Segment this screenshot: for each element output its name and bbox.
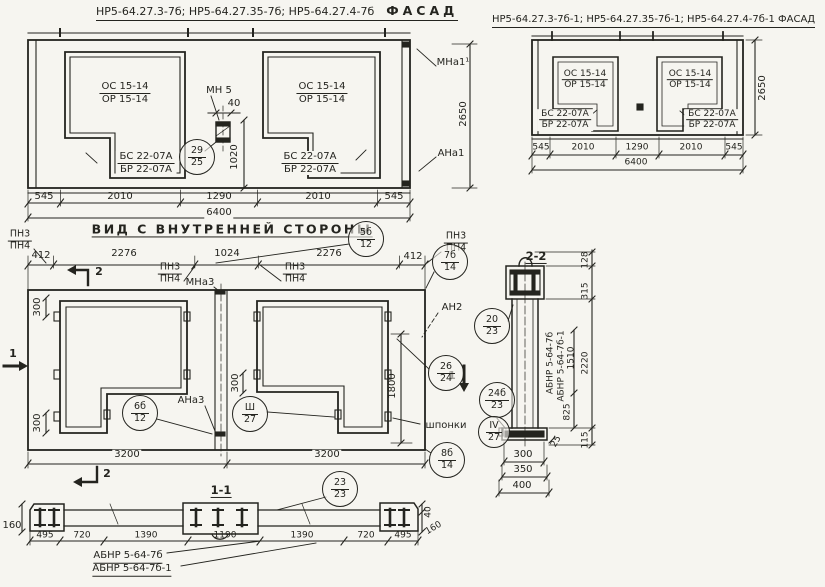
fr-dim-2010-1: 2010: [572, 143, 595, 152]
s22-dim-2220: 2220: [581, 352, 590, 375]
s22-dim-400: 400: [512, 481, 531, 492]
mna1-label: МНа1¹: [437, 58, 470, 69]
s11-dim-1190: 1190: [214, 531, 237, 540]
opening-mark-left-1: ОС 15-14ОР 15-14: [99, 81, 150, 105]
facade-right-title: НР5-64.27.3-7б-1; НР5-64.27.35-7б-1; НР5…: [492, 14, 815, 28]
section-2-2-title: 2-2: [526, 250, 547, 264]
fl-dim-2650: 2650: [459, 101, 470, 126]
opening-mark-left-2: ОС 15-14ОР 15-14: [296, 81, 347, 105]
s11-dim-1390-1: 1390: [135, 531, 158, 540]
s22-dim-128: 128: [581, 251, 590, 268]
callout-26-24: 2624: [428, 355, 464, 391]
fl-dim-1290: 1290: [206, 192, 231, 203]
s11-dim-40: 40: [424, 506, 433, 517]
callout-20-23: 2023: [474, 308, 510, 344]
in-dim-300-2: 300: [33, 413, 44, 432]
s11-dim-1390-2: 1390: [291, 531, 314, 540]
inner-view-keys: [54, 312, 391, 421]
facade-left-panel: [28, 29, 410, 193]
ana3-label: АНа3: [178, 396, 205, 407]
fr-dim-2010-2: 2010: [680, 143, 703, 152]
section-2-2-body: [499, 258, 547, 446]
callout-7b-14: 7б14: [432, 244, 468, 280]
dim-1020: 1020: [230, 144, 241, 169]
section-1-1-title: 1-1: [211, 484, 232, 498]
block-mark-left-2: БС 22-07АБР 22-07А: [280, 151, 341, 175]
s11-abnr-label-2: АБНР 5-64-7б-1: [92, 564, 171, 577]
inner-view-openings: [60, 301, 388, 433]
s11-abnr-label-1: АБНР 5-64-7б: [93, 551, 162, 564]
s22-abnr-label-1: АБНР 5-64-7б: [546, 332, 555, 394]
section-1-1-channels: [35, 509, 409, 526]
drawing-sheet: НР5-64.27.3-7б; НР5-64.27.35-7б; НР5-64.…: [0, 0, 825, 587]
in-dim-2276-1: 2276: [111, 249, 136, 260]
fr-dim-545-2: 545: [725, 143, 742, 152]
facade-left-title: НР5-64.27.3-7б; НР5-64.27.35-7б; НР5-64.…: [96, 3, 458, 21]
an2-label: АН2: [442, 303, 463, 314]
fr-dim-545-1: 545: [532, 143, 549, 152]
dim-40: 40: [228, 99, 241, 110]
pn-mark-mid-2: ПН3ПН4: [283, 263, 307, 286]
shponki-label: шпонки: [426, 421, 467, 432]
fr-dim-total: 6400: [623, 158, 650, 167]
callout-III-27: Ш27: [232, 396, 268, 432]
ana1-label: АНа1: [438, 149, 465, 160]
s11-dim-720-1: 720: [73, 531, 90, 540]
facade-right-leaders: [590, 110, 687, 117]
fr-dim-1290: 1290: [626, 143, 649, 152]
inner-view-title: ВИД С ВНУТРЕННЕЙ СТОРОНЫ: [92, 222, 373, 237]
callout-IV-27: IV27: [478, 416, 510, 448]
block-mark-right-1: БС 22-07АБР 22-07А: [537, 109, 593, 131]
callout-23-23: 2323: [322, 471, 358, 507]
s11-dim-160-left: 160: [2, 521, 21, 532]
in-dim-412-1: 412: [31, 251, 50, 262]
opening-mark-right-1: ОС 15-14ОР 15-14: [562, 69, 608, 91]
in-dim-300-3: 300: [231, 373, 242, 392]
in-dim-3200-1: 3200: [112, 450, 141, 461]
opening-mark-right-2: ОС 15-14ОР 15-14: [667, 69, 713, 91]
fl-dim-545-1: 545: [34, 192, 53, 203]
block-mark-right-2: БС 22-07АБР 22-07А: [684, 109, 740, 131]
s22-dim-825: 825: [563, 403, 572, 420]
section-marker-2-top: 2: [95, 266, 103, 278]
s22-dim-1510: 1510: [567, 347, 576, 370]
mna3-label: МНа3: [186, 278, 215, 289]
s11-dim-720-2: 720: [357, 531, 374, 540]
fl-dim-545-2: 545: [384, 192, 403, 203]
callout-5b-12: 5б12: [348, 221, 384, 257]
callout-29-25: 2925: [179, 139, 215, 175]
fr-dim-2650: 2650: [758, 75, 769, 100]
s22-dim-315: 315: [581, 282, 590, 299]
in-dim-300-1: 300: [33, 297, 44, 316]
s11-dim-495-2: 495: [394, 531, 411, 540]
callout-8b-14: 8б14: [429, 442, 465, 478]
mn5-label: МН 5: [206, 86, 232, 97]
in-dim-1024: 1024: [214, 249, 239, 260]
s22-dim-115: 115: [581, 431, 590, 448]
fl-dim-2010-1: 2010: [107, 192, 132, 203]
pn-mark-left: ПН3ПН4: [8, 230, 32, 253]
pn-mark-mid-1: ПН3ПН4: [158, 263, 182, 286]
in-dim-1800: 1800: [388, 373, 399, 398]
callout-6b-12: 6б12: [122, 395, 158, 431]
inner-view-panel: [28, 284, 425, 456]
s11-dim-495-1: 495: [36, 531, 53, 540]
in-dim-3200-2: 3200: [312, 450, 341, 461]
in-dim-2276-2: 2276: [316, 249, 341, 260]
section-marker-1-left: 1: [9, 348, 17, 360]
facade-left-title-word: ФАСАД: [386, 3, 458, 18]
fl-dim-2010-2: 2010: [305, 192, 330, 203]
callout-24b-23: 24б23: [479, 382, 515, 418]
s22-dim-350: 350: [513, 465, 532, 476]
s22-dim-300: 300: [513, 450, 532, 461]
block-mark-left-1: БС 22-07АБР 22-07А: [116, 151, 177, 175]
section-marker-2-bottom: 2: [103, 468, 111, 480]
fl-dim-total: 6400: [204, 208, 233, 219]
facade-left-title-codes: НР5-64.27.3-7б; НР5-64.27.35-7б; НР5-64.…: [96, 5, 374, 18]
in-dim-412-2: 412: [403, 252, 422, 263]
